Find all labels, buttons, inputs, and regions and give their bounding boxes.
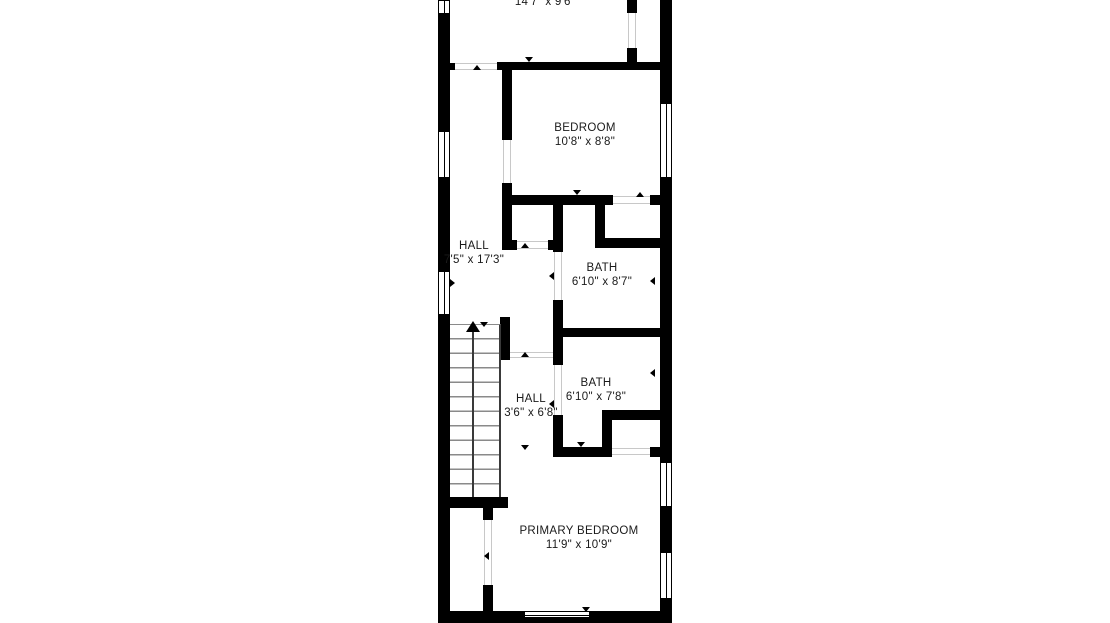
door-tick xyxy=(582,607,590,612)
window-pane-line xyxy=(444,272,445,314)
room-name: HALL xyxy=(504,392,558,406)
wall-stairs-bottom xyxy=(438,497,508,508)
room-name: BEDROOM xyxy=(554,121,616,135)
room-name: PRIMARY BEDROOM xyxy=(519,524,638,538)
room-dims: 6'10" x 8'7" xyxy=(572,275,632,289)
stairs xyxy=(450,324,501,497)
room-name: BATH xyxy=(566,376,626,390)
room-name: BATH xyxy=(572,261,632,275)
door-tick xyxy=(584,452,592,457)
window xyxy=(660,462,672,507)
door-opening-top-nook xyxy=(628,13,636,48)
wall-hall-closet-bottom-left xyxy=(502,240,517,250)
wall-bedroom-left-upper xyxy=(502,62,512,140)
window-pane-line xyxy=(525,615,589,616)
wall-bedroom-closet-left xyxy=(595,205,605,248)
room-dims: 3'6" x 6'8" xyxy=(504,406,558,420)
wall-outer-right xyxy=(660,0,672,623)
door-opening-bedroom-closet xyxy=(613,196,650,204)
door-tick xyxy=(636,192,644,197)
wall-stairs-top-nub xyxy=(500,317,510,360)
room-dims: 7'5" x 17'3" xyxy=(444,253,504,267)
door-opening-bedroom xyxy=(503,140,511,183)
floor-plan-canvas: 14'7" x 9'6" BEDROOM 10'8" x 8'8" HALL 7… xyxy=(0,0,1110,623)
window-pane-line xyxy=(666,553,667,598)
wall-bedroom-closet-bottom xyxy=(605,238,660,248)
room-label-top-partial: 14'7" x 9'6" xyxy=(515,0,575,9)
window xyxy=(660,552,672,599)
window xyxy=(438,271,450,315)
door-tick xyxy=(450,279,455,287)
door-tick xyxy=(525,57,533,62)
wall-primary-closet-top xyxy=(612,410,660,420)
room-dims: 11'9" x 10'9" xyxy=(519,538,638,552)
room-label-bath-upper: BATH 6'10" x 8'7" xyxy=(572,261,632,289)
door-tick xyxy=(575,65,583,70)
window xyxy=(438,0,450,14)
room-label-primary-bedroom: PRIMARY BEDROOM 11'9" x 10'9" xyxy=(519,524,638,552)
door-tick xyxy=(650,277,655,285)
room-dims: 14'7" x 9'6" xyxy=(515,0,575,9)
room-label-hall-upper: HALL 7'5" x 17'3" xyxy=(444,239,504,267)
door-tick xyxy=(573,190,581,195)
wall-between-baths xyxy=(563,328,660,337)
door-tick xyxy=(521,352,529,357)
window-pane-line xyxy=(666,463,667,506)
room-label-bath-lower: BATH 6'10" x 7'8" xyxy=(566,376,626,404)
wall-bottom-closet-upper xyxy=(483,497,493,520)
door-tick xyxy=(549,272,554,280)
wall-bottom-closet-lower xyxy=(483,585,493,611)
window xyxy=(524,611,590,618)
window-pane-line xyxy=(444,1,445,13)
door-tick xyxy=(473,65,481,70)
wall-primary-closet-left xyxy=(602,410,612,457)
wall-bath-left-upper xyxy=(553,195,563,252)
door-opening-lower-hall xyxy=(510,352,553,358)
window-pane-line xyxy=(444,132,445,177)
stairs-up-arrow-icon xyxy=(466,321,480,332)
wall-bedroom-bottom-nub xyxy=(650,195,660,205)
door-tick xyxy=(480,322,488,327)
door-tick xyxy=(484,552,489,560)
window-pane-line xyxy=(666,104,667,177)
door-opening-upper-bath xyxy=(554,252,562,300)
room-label-hall-lower: HALL 3'6" x 6'8" xyxy=(504,392,558,420)
wall-top-nook-upper xyxy=(627,0,637,13)
room-dims: 10'8" x 8'8" xyxy=(554,135,616,149)
room-label-bedroom: BEDROOM 10'8" x 8'8" xyxy=(554,121,616,149)
room-name: HALL xyxy=(444,239,504,253)
door-tick xyxy=(650,369,655,377)
door-tick xyxy=(577,442,585,447)
door-opening-primary-closet xyxy=(612,448,650,455)
wall-primary-closet-nub xyxy=(650,447,660,457)
window xyxy=(438,131,450,178)
door-tick xyxy=(521,445,529,450)
door-tick xyxy=(521,243,529,248)
wall-bath-left-middle xyxy=(553,300,563,365)
room-dims: 6'10" x 7'8" xyxy=(566,390,626,404)
stairs-center-line xyxy=(472,331,474,497)
window xyxy=(660,103,672,178)
